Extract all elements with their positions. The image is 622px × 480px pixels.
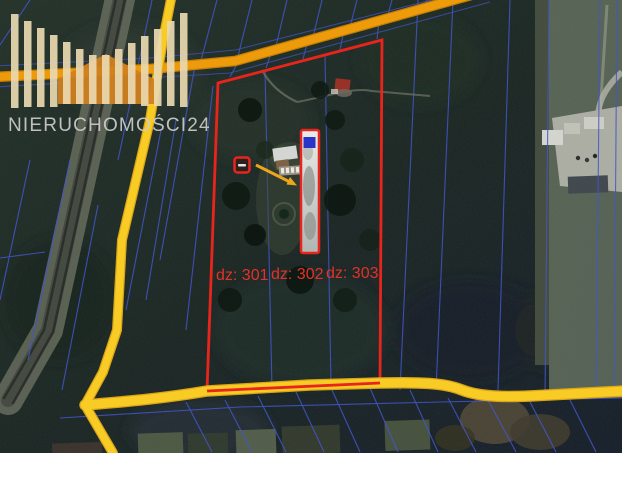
long-building [301, 130, 319, 253]
parcel-labels: dz: 301 dz: 302 dz: 303 [216, 265, 379, 284]
blue-roof-section [304, 137, 316, 148]
marker-icon [235, 158, 250, 173]
parcel-label-302: dz: 302 [271, 266, 324, 283]
parcel-label-301: dz: 301 [216, 267, 269, 284]
map-screenshot: dz: 301 dz: 302 dz: 303 NIERUCHOMOŚCI24 [0, 0, 622, 480]
bottom-white-strip [0, 453, 622, 480]
satellite-map: dz: 301 dz: 302 dz: 303 NIERUCHOMOŚCI24 [0, 0, 622, 480]
logo-brand-text: NIERUCHOMOŚCI24 [8, 114, 211, 136]
parcel-label-303: dz: 303 [326, 265, 379, 282]
